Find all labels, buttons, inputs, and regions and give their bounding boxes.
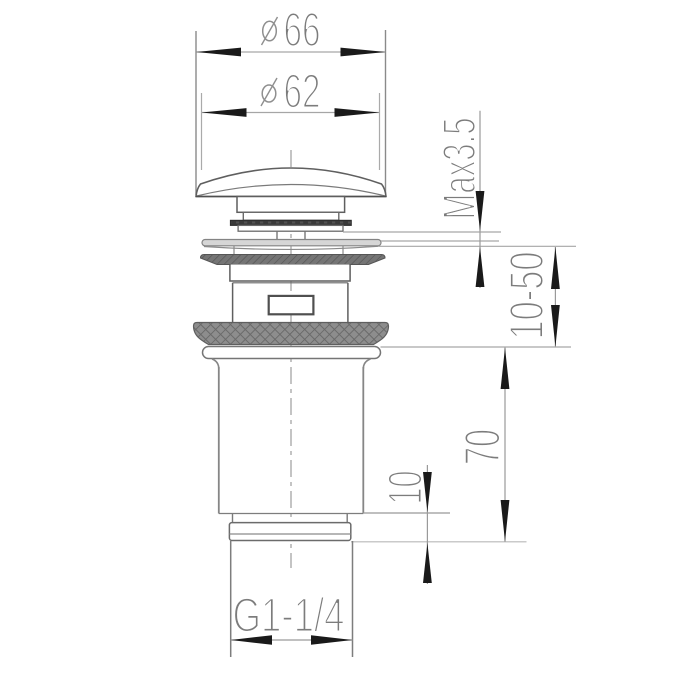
svg-text:70: 70	[455, 429, 511, 465]
svg-text:10-50: 10-50	[501, 252, 554, 340]
svg-text:G1-1/4: G1-1/4	[233, 590, 345, 643]
svg-text:66: 66	[284, 4, 321, 57]
svg-text:62: 62	[284, 66, 321, 119]
